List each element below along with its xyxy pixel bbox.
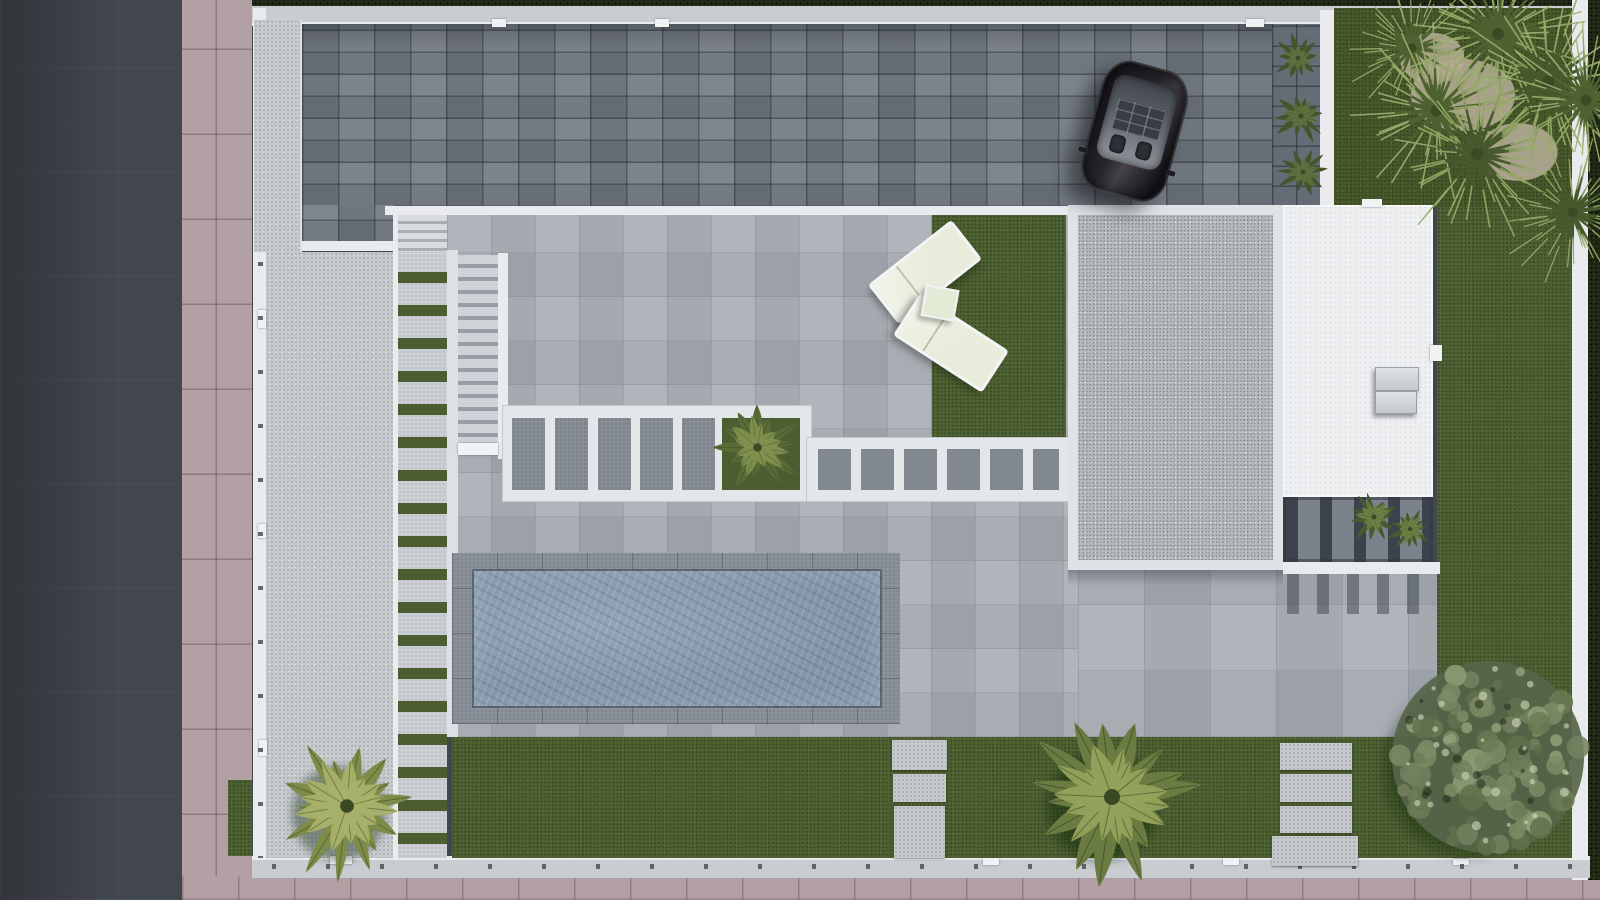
wall-cap <box>492 19 506 27</box>
sidewalk-left <box>182 0 252 900</box>
slat-shadows <box>1287 574 1427 614</box>
pergola-cell <box>555 418 588 490</box>
car-seat <box>1134 140 1153 161</box>
terrace-staircase <box>458 255 498 455</box>
stepping-slab <box>1280 774 1352 802</box>
grass-verge <box>228 780 252 856</box>
staircase-landing <box>458 443 498 455</box>
fence-posts-left <box>258 262 263 858</box>
ac-unit <box>1375 391 1417 414</box>
pergola-cell <box>1033 449 1059 490</box>
stepping-pad <box>893 774 946 802</box>
slatted-court <box>1283 497 1433 562</box>
wall-cap <box>1569 760 1577 776</box>
wall-cap <box>330 856 352 864</box>
fence-posts-bottom <box>272 864 1572 869</box>
roof-drop-shadow <box>1068 570 1283 586</box>
boundary-hedge-right <box>1588 0 1600 880</box>
stepping-slab-large <box>1272 836 1358 866</box>
car-mirror <box>1166 170 1176 177</box>
lawn-top-right <box>1334 8 1572 207</box>
lawn-edge-cap <box>1362 199 1382 207</box>
pergola-cell <box>861 449 894 490</box>
pergola-east <box>806 437 1070 502</box>
slatted-court-beam <box>1283 562 1440 574</box>
pergola-cell <box>512 418 545 490</box>
aerial-villa-scene <box>0 0 1600 900</box>
pergola-cell <box>640 418 673 490</box>
entry-concrete-strip <box>254 20 302 252</box>
stepping-pad <box>894 806 945 858</box>
perimeter-wall-right <box>1572 0 1588 880</box>
planter-bed <box>1272 24 1322 207</box>
pergola-cell <box>904 449 937 490</box>
stepping-slab <box>1280 806 1352 833</box>
car-seat <box>1108 133 1127 154</box>
main-house-roof <box>1068 205 1283 570</box>
garage-roof <box>1283 205 1433 497</box>
paver-driveway-notch <box>302 205 394 243</box>
car-roof-glass <box>1094 72 1180 172</box>
wall-cap <box>1246 19 1264 27</box>
asphalt-road <box>0 0 182 900</box>
pergola-cell <box>947 449 980 490</box>
roof-edge-cap <box>1430 345 1442 361</box>
stepping-slab <box>1280 743 1352 770</box>
side-yard-concrete <box>266 252 397 858</box>
inner-garden-wall <box>1320 10 1334 207</box>
lawn-right <box>1437 207 1572 858</box>
wall-cap <box>655 19 669 27</box>
pergola-cell <box>682 418 715 490</box>
swimming-pool <box>472 569 882 708</box>
side-table <box>920 284 959 321</box>
sidewalk-bottom <box>182 876 1600 900</box>
stepping-pad <box>892 740 947 770</box>
pergola-west <box>502 405 812 502</box>
pergola-planter-cell <box>722 418 800 490</box>
stepping-walkway <box>398 250 447 858</box>
pergola-cell <box>990 449 1023 490</box>
pergola-cell <box>598 418 631 490</box>
ac-unit <box>1375 367 1419 391</box>
pergola-cell <box>818 449 851 490</box>
